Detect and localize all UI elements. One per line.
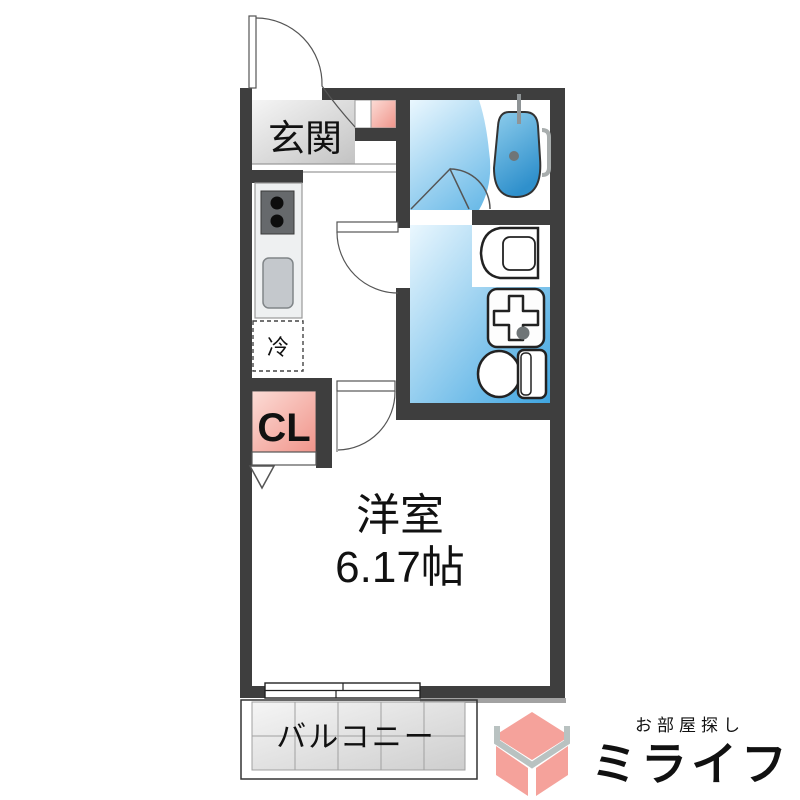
balcony-label: バルコニー bbox=[276, 721, 435, 754]
floorplan-page: 玄関 冷 CL 洋室 6.17帖 バルコニー お部屋探し ミライフ bbox=[0, 0, 800, 800]
balcony-window-icon bbox=[265, 683, 420, 698]
living-room-label: 洋室 bbox=[356, 491, 444, 540]
genkan-label: 玄関 bbox=[268, 118, 342, 159]
brand-name: ミライフ bbox=[591, 738, 791, 790]
burner-icon bbox=[271, 215, 284, 228]
drain-icon bbox=[509, 151, 519, 161]
living-room-size: 6.17帖 bbox=[335, 543, 465, 592]
washroom-door-icon bbox=[337, 222, 398, 293]
closet-label: CL bbox=[257, 406, 310, 450]
floor-plan: 玄関 冷 CL 洋室 6.17帖 バルコニー お部屋探し ミライフ bbox=[0, 0, 800, 800]
brand-tagline: お部屋探し bbox=[635, 716, 745, 735]
fridge-label: 冷 bbox=[267, 335, 289, 360]
toilet-icon bbox=[478, 350, 546, 398]
washbasin-icon bbox=[481, 228, 538, 278]
kitchen-sink-icon bbox=[263, 258, 293, 308]
kitchen-counter bbox=[255, 183, 302, 318]
shoe-cabinet-pink-icon bbox=[371, 100, 396, 128]
washing-machine-pan-icon bbox=[488, 289, 544, 347]
shoe-cabinet-icon bbox=[355, 100, 371, 128]
brand-logo-cube-icon bbox=[494, 712, 570, 796]
shower-head-icon bbox=[517, 94, 521, 124]
room-door-icon bbox=[337, 381, 395, 452]
drain-icon bbox=[517, 327, 530, 340]
burner-icon bbox=[271, 197, 284, 210]
closet-door-icon bbox=[250, 452, 316, 488]
